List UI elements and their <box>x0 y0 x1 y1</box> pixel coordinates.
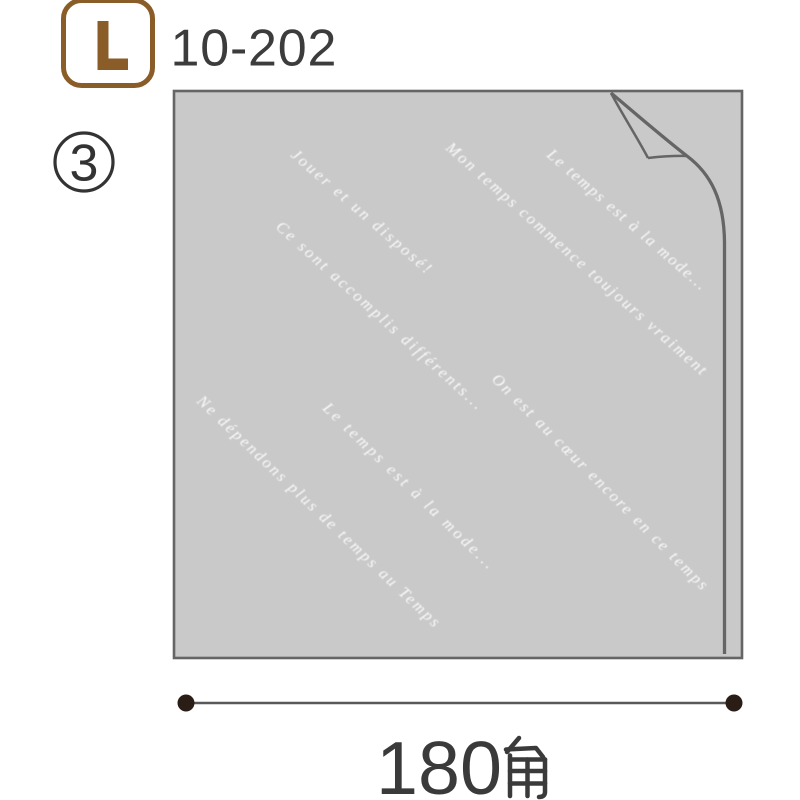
svg-text:10-202: 10-202 <box>171 20 338 78</box>
svg-text:3: 3 <box>70 135 99 193</box>
svg-text:180: 180 <box>376 726 502 800</box>
